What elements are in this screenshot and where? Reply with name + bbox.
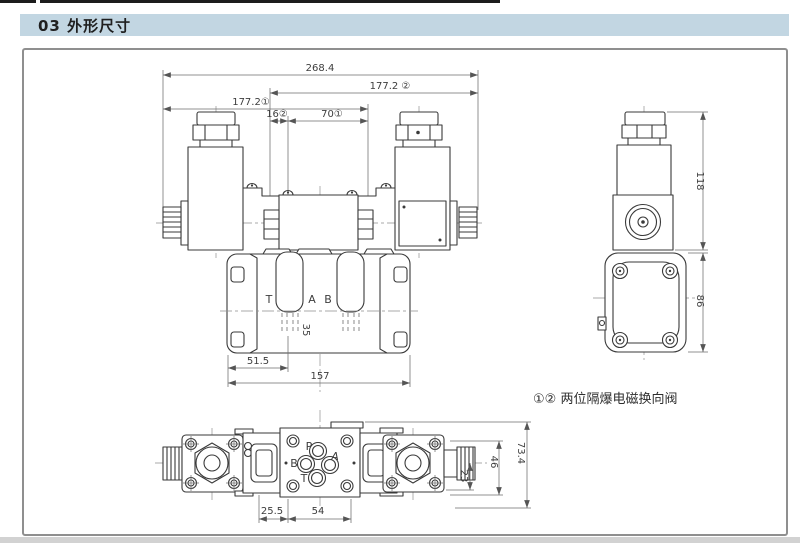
bottom-right-flange (383, 435, 444, 492)
port-label-t: T (265, 293, 273, 306)
side-solenoid-body (617, 145, 671, 195)
port-label-b: B (324, 293, 332, 306)
left-end-cap (163, 201, 188, 245)
catalog-page: 03 外形尺寸 268.4 177.2 ② (0, 0, 800, 543)
bottom-port-label-t: T (300, 472, 308, 485)
dimension-drawing: 268.4 177.2 ② 177.2① 16② 70① (0, 0, 800, 543)
dim-depth35: 35 (300, 324, 311, 337)
dim-offset25-5: 25.5 (261, 506, 283, 517)
drawing-note: ①② 两位隔爆电磁换向阀 (533, 391, 677, 407)
dim-spacing46: 46 (488, 456, 499, 469)
dim-width-v1: 177.2① (232, 97, 270, 108)
nameplate (399, 201, 446, 246)
bottom-left-end-cap (163, 447, 182, 480)
mounting-slot-left (276, 252, 303, 312)
dim-offset16: 16② (266, 109, 288, 120)
right-end-cap (450, 201, 477, 245)
bottom-port-label-b: B (290, 457, 298, 470)
right-cable-gland (396, 112, 442, 147)
valve-body (279, 195, 358, 250)
port-label-a: A (308, 293, 316, 306)
bottom-center-plate: P B A T (280, 422, 363, 497)
side-cable-gland (622, 112, 666, 145)
dim-height86: 86 (694, 295, 705, 308)
bottom-left-flange (182, 435, 243, 492)
dim-depth73-4: 73.4 (515, 442, 526, 464)
subplate: T A B 35 (220, 249, 418, 353)
dim-width-v2: 177.2 ② (370, 81, 411, 92)
side-end-plate (598, 253, 686, 352)
bottom-view: P B A T (155, 410, 531, 523)
left-step-ledge (243, 188, 279, 196)
top-screws (247, 184, 391, 196)
dim-spacing54: 54 (312, 506, 325, 517)
dim-offset70: 70① (321, 109, 343, 120)
left-solenoid-body (188, 147, 243, 250)
right-hex-nut (358, 210, 373, 239)
dim-offset51-5: 51.5 (247, 356, 269, 367)
dim-offset23: 23 (458, 470, 469, 483)
side-view: 118 86 (593, 106, 708, 360)
left-hex-nut (264, 210, 279, 239)
bottom-port-label-a: A (330, 450, 339, 463)
right-step-ledge (358, 188, 395, 196)
bottom-port-label-p: P (306, 440, 313, 453)
mounting-slot-right (337, 252, 364, 312)
front-view: 268.4 177.2 ② 177.2① 16② 70① (156, 63, 482, 392)
left-cable-gland (193, 112, 239, 147)
dim-overall-width: 268.4 (306, 63, 335, 74)
bottom-left-connector (243, 433, 280, 493)
dim-width157: 157 (310, 371, 329, 382)
dim-height118: 118 (694, 171, 705, 190)
